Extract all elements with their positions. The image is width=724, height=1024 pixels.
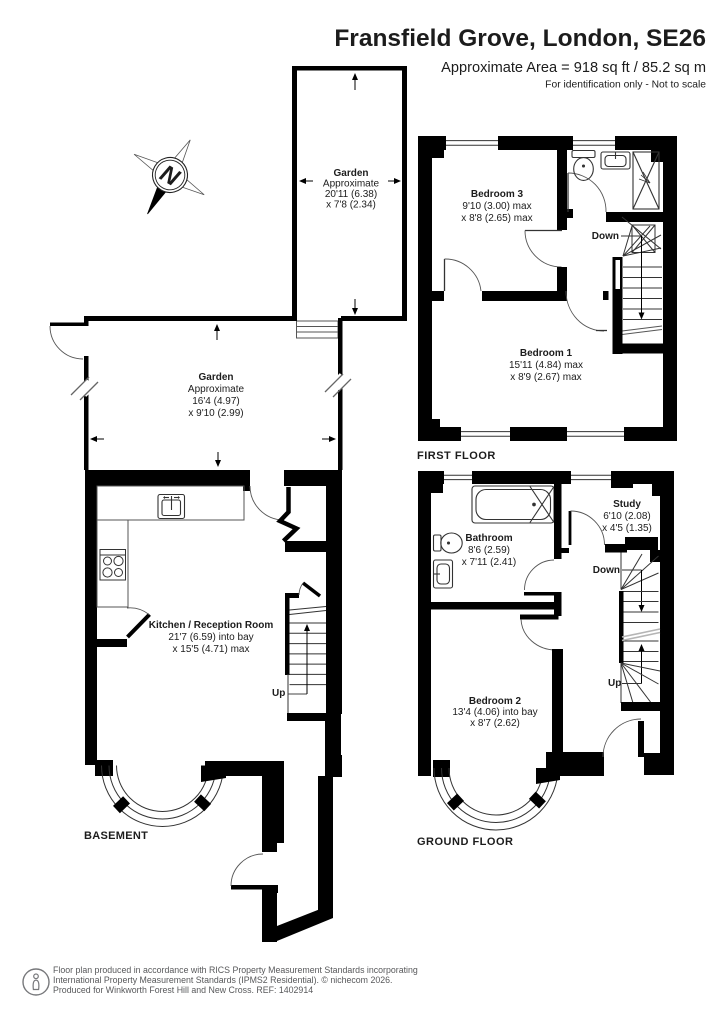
svg-text:Up: Up [272,688,285,699]
svg-text:Floor plan produced in accorda: Floor plan produced in accordance with R… [53,965,418,975]
svg-text:Approximate: Approximate [188,384,245,395]
svg-text:8'6 (2.59): 8'6 (2.59) [468,545,510,556]
svg-text:Down: Down [592,231,619,242]
svg-text:16'4 (4.97): 16'4 (4.97) [192,396,240,407]
svg-text:x 7'8 (2.34): x 7'8 (2.34) [326,200,376,211]
svg-text:x 8'8 (2.65) max: x 8'8 (2.65) max [461,213,532,224]
svg-text:x 7'11 (2.41): x 7'11 (2.41) [462,557,517,568]
svg-text:x 15'5 (4.71) max: x 15'5 (4.71) max [173,644,250,655]
svg-text:GROUND FLOOR: GROUND FLOOR [417,836,513,848]
svg-text:Produced for Winkworth Forest: Produced for Winkworth Forest Hill and N… [53,985,313,995]
svg-text:Approximate Area = 918 sq ft /: Approximate Area = 918 sq ft / 85.2 sq m [441,60,706,76]
svg-text:x 8'7 (2.62): x 8'7 (2.62) [470,718,520,729]
svg-text:x 8'9 (2.67) max: x 8'9 (2.67) max [510,372,581,383]
svg-text:Garden: Garden [333,168,368,179]
svg-text:Up: Up [608,678,621,689]
svg-text:Study: Study [613,499,641,510]
svg-text:For identification only - Not: For identification only - Not to scale [545,80,706,91]
svg-text:Down: Down [593,565,620,576]
svg-text:20'11 (6.38): 20'11 (6.38) [325,189,377,200]
svg-text:13'4 (4.06) into bay: 13'4 (4.06) into bay [452,707,537,718]
svg-text:Garden: Garden [198,372,233,383]
svg-text:15'11 (4.84) max: 15'11 (4.84) max [509,360,583,371]
svg-text:Bedroom 1: Bedroom 1 [520,348,573,359]
svg-text:Bedroom 2: Bedroom 2 [469,696,522,707]
svg-text:Approximate: Approximate [323,179,380,190]
svg-text:9'10 (3.00) max: 9'10 (3.00) max [462,201,531,212]
svg-text:x 9'10 (2.99): x 9'10 (2.99) [188,408,243,419]
svg-text:21'7 (6.59) into bay: 21'7 (6.59) into bay [168,632,253,643]
svg-text:6'10 (2.08): 6'10 (2.08) [603,511,651,522]
svg-text:Bathroom: Bathroom [465,533,512,544]
svg-text:x 4'5 (1.35): x 4'5 (1.35) [602,523,652,534]
svg-text:BASEMENT: BASEMENT [84,830,148,842]
svg-text:FIRST FLOOR: FIRST FLOOR [417,450,496,462]
svg-text:Bedroom 3: Bedroom 3 [471,189,524,200]
svg-text:Fransfield Grove, London, SE26: Fransfield Grove, London, SE26 [334,25,706,52]
svg-text:International Property Measure: International Property Measurement Stand… [53,975,392,985]
svg-text:Kitchen / Reception Room: Kitchen / Reception Room [149,620,274,631]
